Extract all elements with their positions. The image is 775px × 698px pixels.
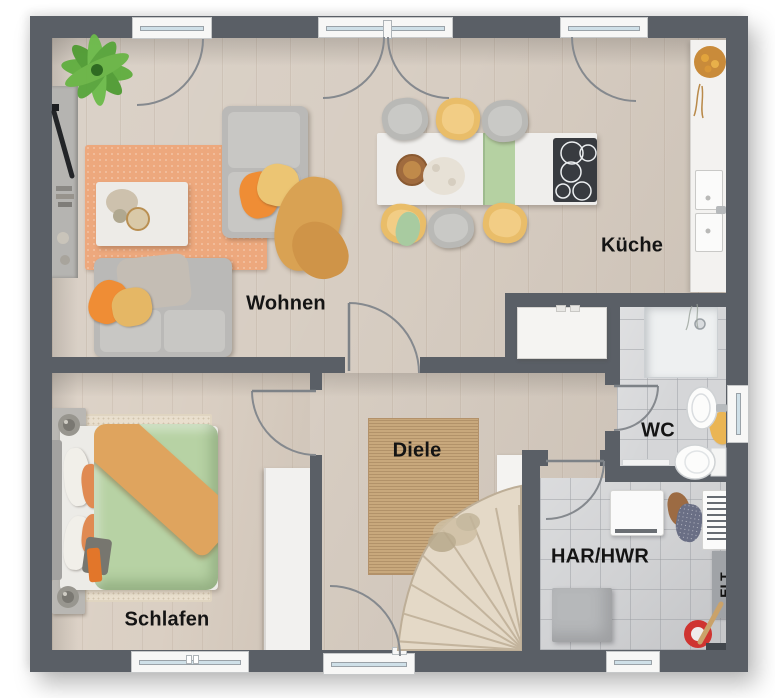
cooktop-burners — [556, 142, 596, 200]
arc-door-living-hall — [349, 303, 419, 373]
room-label-schlafen: Schlafen — [125, 609, 210, 632]
door-leaves — [252, 303, 658, 461]
room-label-kueche: Küche — [601, 235, 663, 258]
room-label-wc: WC — [641, 420, 675, 443]
arc-window-living — [137, 39, 203, 105]
room-label-diele: Diele — [393, 440, 442, 463]
bedside-lamp-icon — [57, 414, 80, 608]
counter-decor-icon — [694, 46, 726, 234]
arc-door-bedroom — [252, 391, 316, 455]
room-label-wohnen: Wohnen — [246, 293, 326, 316]
room-label-har-hwr: HAR/HWR — [551, 546, 649, 569]
tv-icon — [52, 104, 74, 265]
table-decor-icon — [106, 189, 149, 230]
arc-window-kitchen — [572, 37, 636, 101]
plan-linework — [0, 0, 775, 698]
island-decor-icon — [397, 155, 465, 195]
arc-door-utility — [546, 461, 604, 519]
broom-icon — [700, 604, 721, 642]
toilet-icon — [675, 445, 726, 479]
wc-sink-icon — [687, 387, 727, 429]
staircase — [379, 486, 524, 650]
arc-entrance-door — [330, 586, 400, 656]
arc-terrace-right — [388, 37, 449, 98]
floor-plan: ELT — [0, 0, 775, 698]
palm-plant-icon — [60, 33, 134, 106]
arc-terrace-left — [323, 37, 384, 98]
shower-drain-icon — [686, 304, 705, 330]
